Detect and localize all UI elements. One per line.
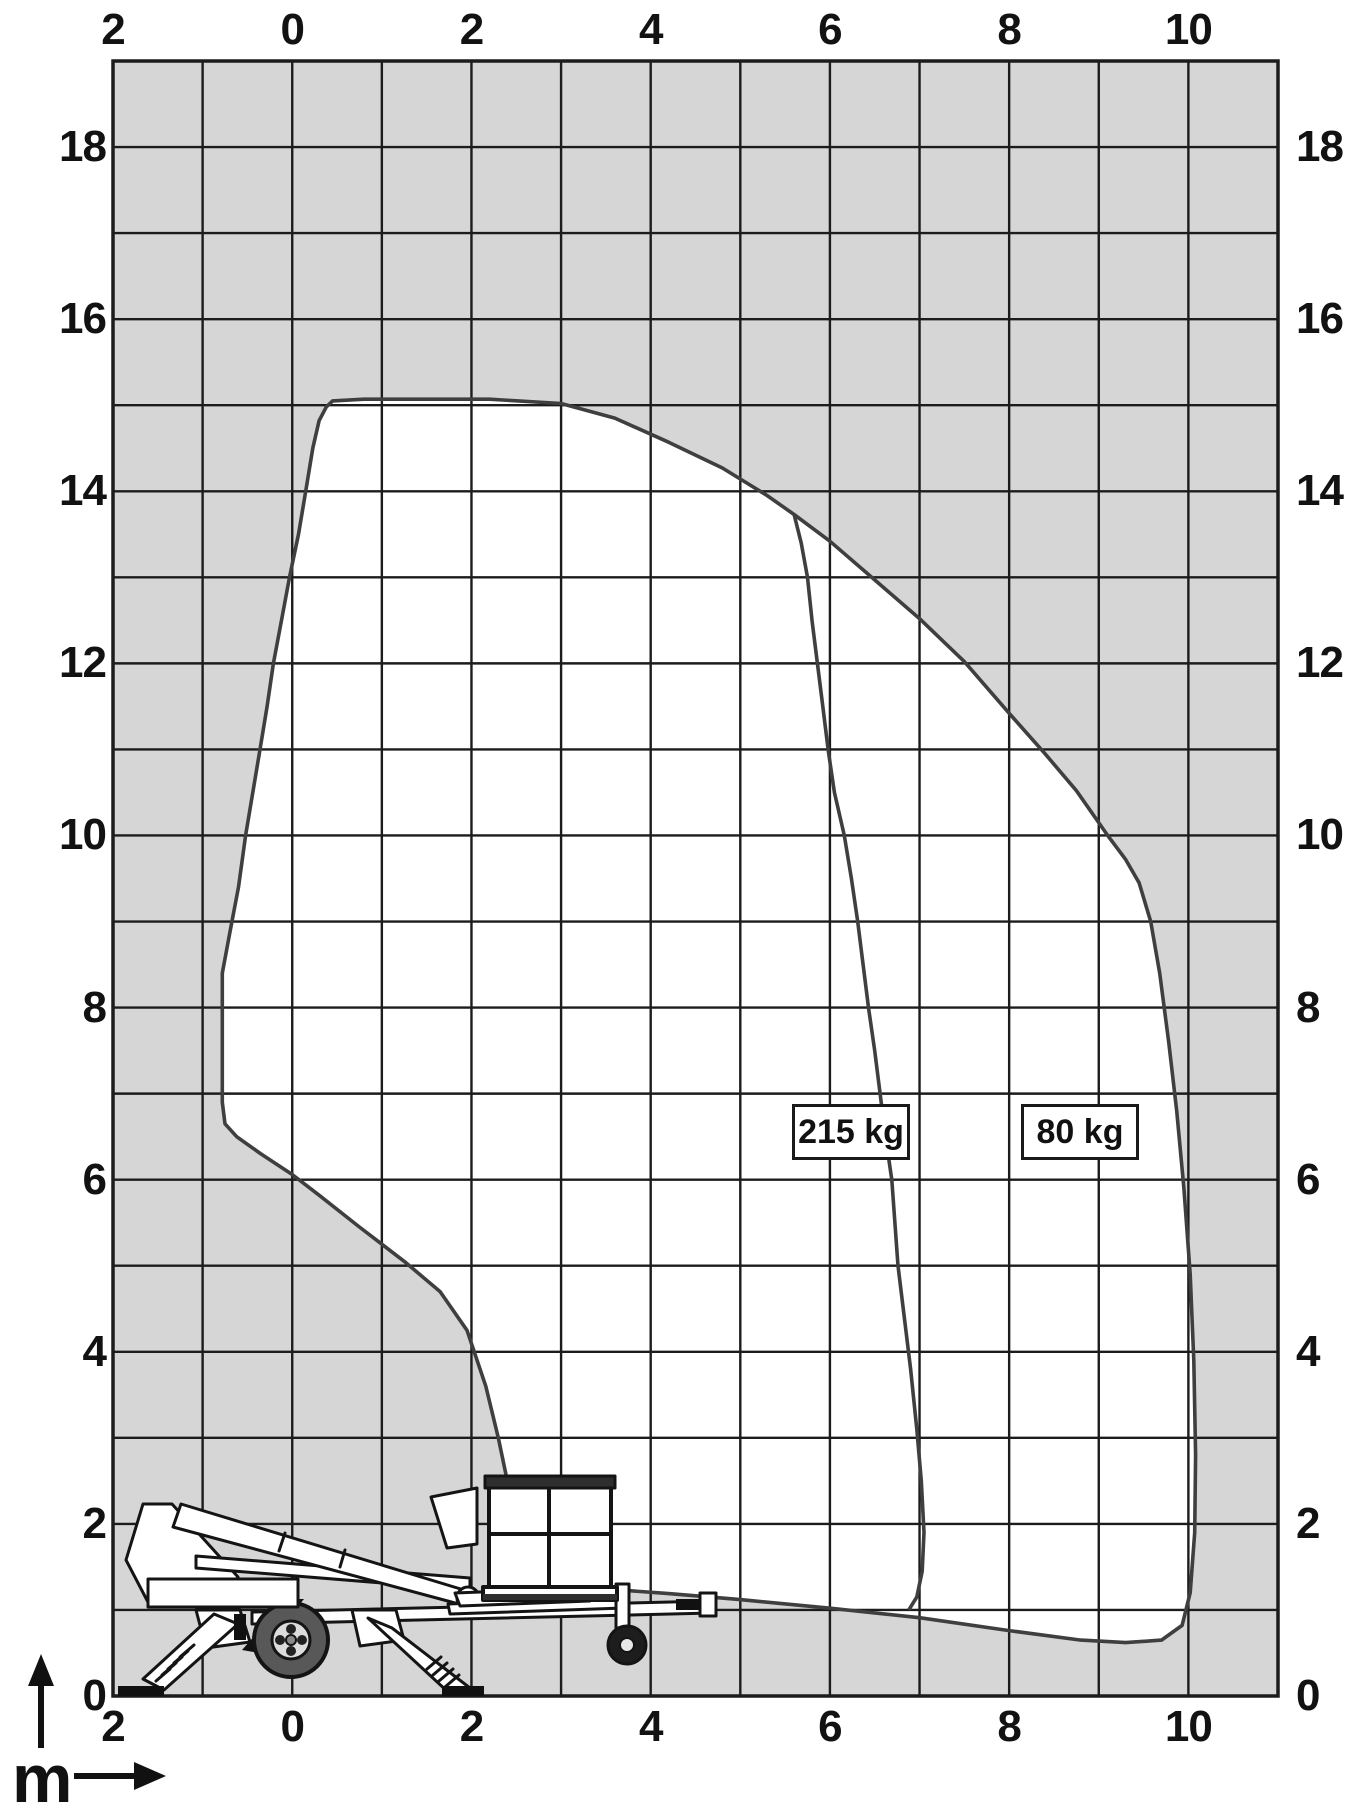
engine-body	[148, 1579, 298, 1607]
basket-top-rail	[485, 1476, 615, 1488]
right-arrow-head	[134, 1762, 166, 1790]
axis-tick-label: 6	[83, 1155, 106, 1205]
axis-tick-label: 14	[59, 466, 106, 516]
axis-tick-label: 6	[818, 5, 841, 55]
axis-tick-label: 4	[639, 5, 662, 55]
axis-tick-label: 4	[83, 1327, 106, 1377]
axis-tick-label: 0	[1296, 1671, 1319, 1721]
basket-floor-band	[483, 1594, 617, 1600]
axis-tick-label: 0	[280, 1702, 303, 1752]
axis-tick-label: 4	[1296, 1327, 1319, 1377]
axis-tick-label: 2	[460, 5, 483, 55]
axis-tick-label: 0	[83, 1671, 106, 1721]
load-limit-label-80kg: 80 kg	[1021, 1104, 1139, 1160]
axis-tick-label: 8	[1296, 983, 1319, 1033]
jockey-hub	[620, 1638, 634, 1652]
axis-tick-label: 2	[101, 5, 124, 55]
axis-tick-label: 18	[1296, 122, 1343, 172]
axis-tick-label: 2	[1296, 1499, 1319, 1549]
axis-tick-label: 12	[59, 638, 106, 688]
axis-tick-label: 6	[818, 1702, 841, 1752]
axis-tick-label: 10	[59, 810, 106, 860]
axis-tick-label: 2	[83, 1499, 106, 1549]
axis-tick-label: 18	[59, 122, 106, 172]
axle-bracket	[234, 1614, 246, 1640]
axis-tick-label: 16	[1296, 294, 1343, 344]
wheel-hub	[286, 1635, 296, 1645]
reach-diagram: 20246810 20246810 181614121086420 181614…	[0, 0, 1359, 1818]
axis-tick-label: 0	[280, 5, 303, 55]
axis-tick-label: 8	[997, 5, 1020, 55]
axis-tick-label: 16	[59, 294, 106, 344]
outrigger-footpad-right	[442, 1686, 484, 1696]
load-limit-label-215kg: 215 kg	[792, 1104, 910, 1160]
up-arrow-head	[28, 1654, 54, 1686]
axis-tick-label: 2	[460, 1702, 483, 1752]
tow-hitch	[700, 1593, 716, 1616]
unit-label-m: m	[12, 1740, 72, 1818]
axis-tick-label: 8	[83, 983, 106, 1033]
axis-tick-label: 4	[639, 1702, 662, 1752]
axis-tick-label: 10	[1165, 1702, 1212, 1752]
axis-tick-label: 8	[997, 1702, 1020, 1752]
axis-tick-label: 6	[1296, 1155, 1319, 1205]
axis-tick-label: 12	[1296, 638, 1343, 688]
reach-diagram-canvas	[0, 0, 1359, 1818]
hitch-coupler	[676, 1599, 700, 1610]
outrigger-footpad-left	[118, 1686, 164, 1696]
axis-tick-label: 10	[1296, 810, 1343, 860]
axis-tick-label: 10	[1165, 5, 1212, 55]
axis-tick-label: 14	[1296, 466, 1343, 516]
